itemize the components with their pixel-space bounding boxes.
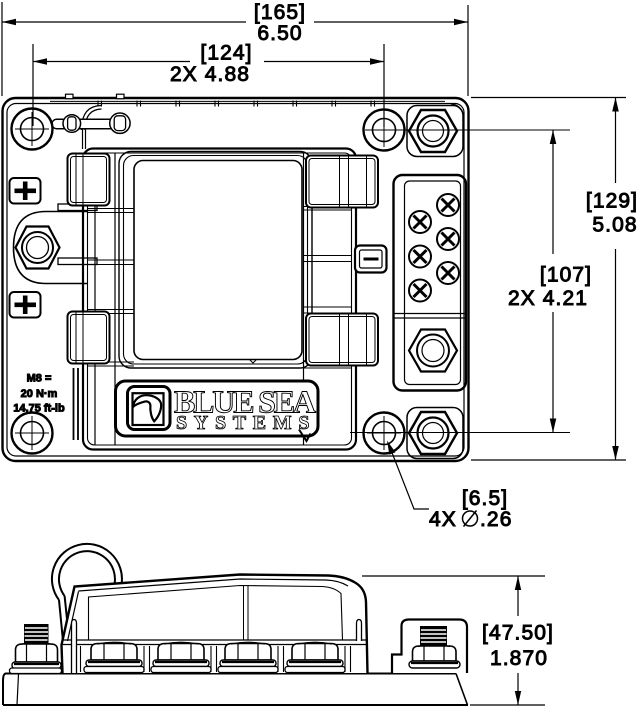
svg-text:2X 4.21: 2X 4.21 xyxy=(508,287,588,310)
svg-text:[6.5]: [6.5] xyxy=(462,487,508,510)
svg-text:2X 4.88: 2X 4.88 xyxy=(170,63,250,86)
svg-text:.26: .26 xyxy=(480,508,513,531)
svg-text:4X: 4X xyxy=(429,508,457,531)
svg-text:SYSTEMS: SYSTEMS xyxy=(176,412,315,434)
svg-text:6.50: 6.50 xyxy=(257,22,302,45)
svg-text:[165]: [165] xyxy=(254,1,306,24)
svg-text:1.870: 1.870 xyxy=(490,647,548,670)
svg-text:M8 =: M8 = xyxy=(27,373,52,385)
svg-text:[107]: [107] xyxy=(540,264,592,287)
svg-text:[47.50]: [47.50] xyxy=(482,622,554,645)
svg-text:[129]: [129] xyxy=(586,190,638,213)
svg-text:[124]: [124] xyxy=(200,42,252,65)
svg-text:5.08: 5.08 xyxy=(592,214,637,237)
svg-text:20 N·m: 20 N·m xyxy=(21,388,58,400)
